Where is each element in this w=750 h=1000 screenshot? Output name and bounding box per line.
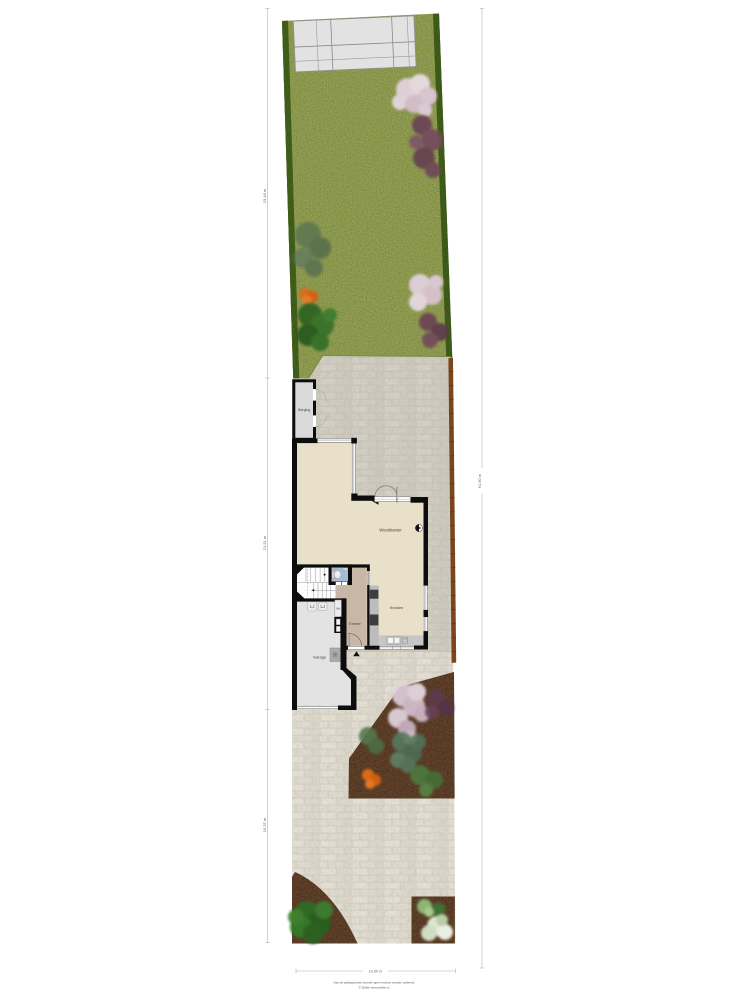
svg-text:© Zibber www.zibber.nl: © Zibber www.zibber.nl [359, 985, 390, 989]
svg-text:21.51 m: 21.51 m [262, 535, 267, 550]
svg-text:15.37 m: 15.37 m [262, 817, 267, 832]
svg-text:Berging: Berging [298, 408, 310, 412]
svg-text:Entree: Entree [349, 621, 362, 626]
svg-text:Woonkamer: Woonkamer [379, 528, 402, 533]
svg-text:Keuken: Keuken [390, 605, 404, 610]
svg-text:Garage: Garage [313, 654, 327, 659]
svg-text:Aan de plattegronden kunnen ge: Aan de plattegronden kunnen geen rechten… [334, 981, 415, 985]
svg-text:Mk: Mk [336, 606, 340, 610]
svg-text:61.90 m: 61.90 m [477, 473, 482, 488]
svg-text:23.44 m: 23.44 m [262, 188, 267, 203]
svg-text:10.00 m: 10.00 m [369, 970, 383, 974]
